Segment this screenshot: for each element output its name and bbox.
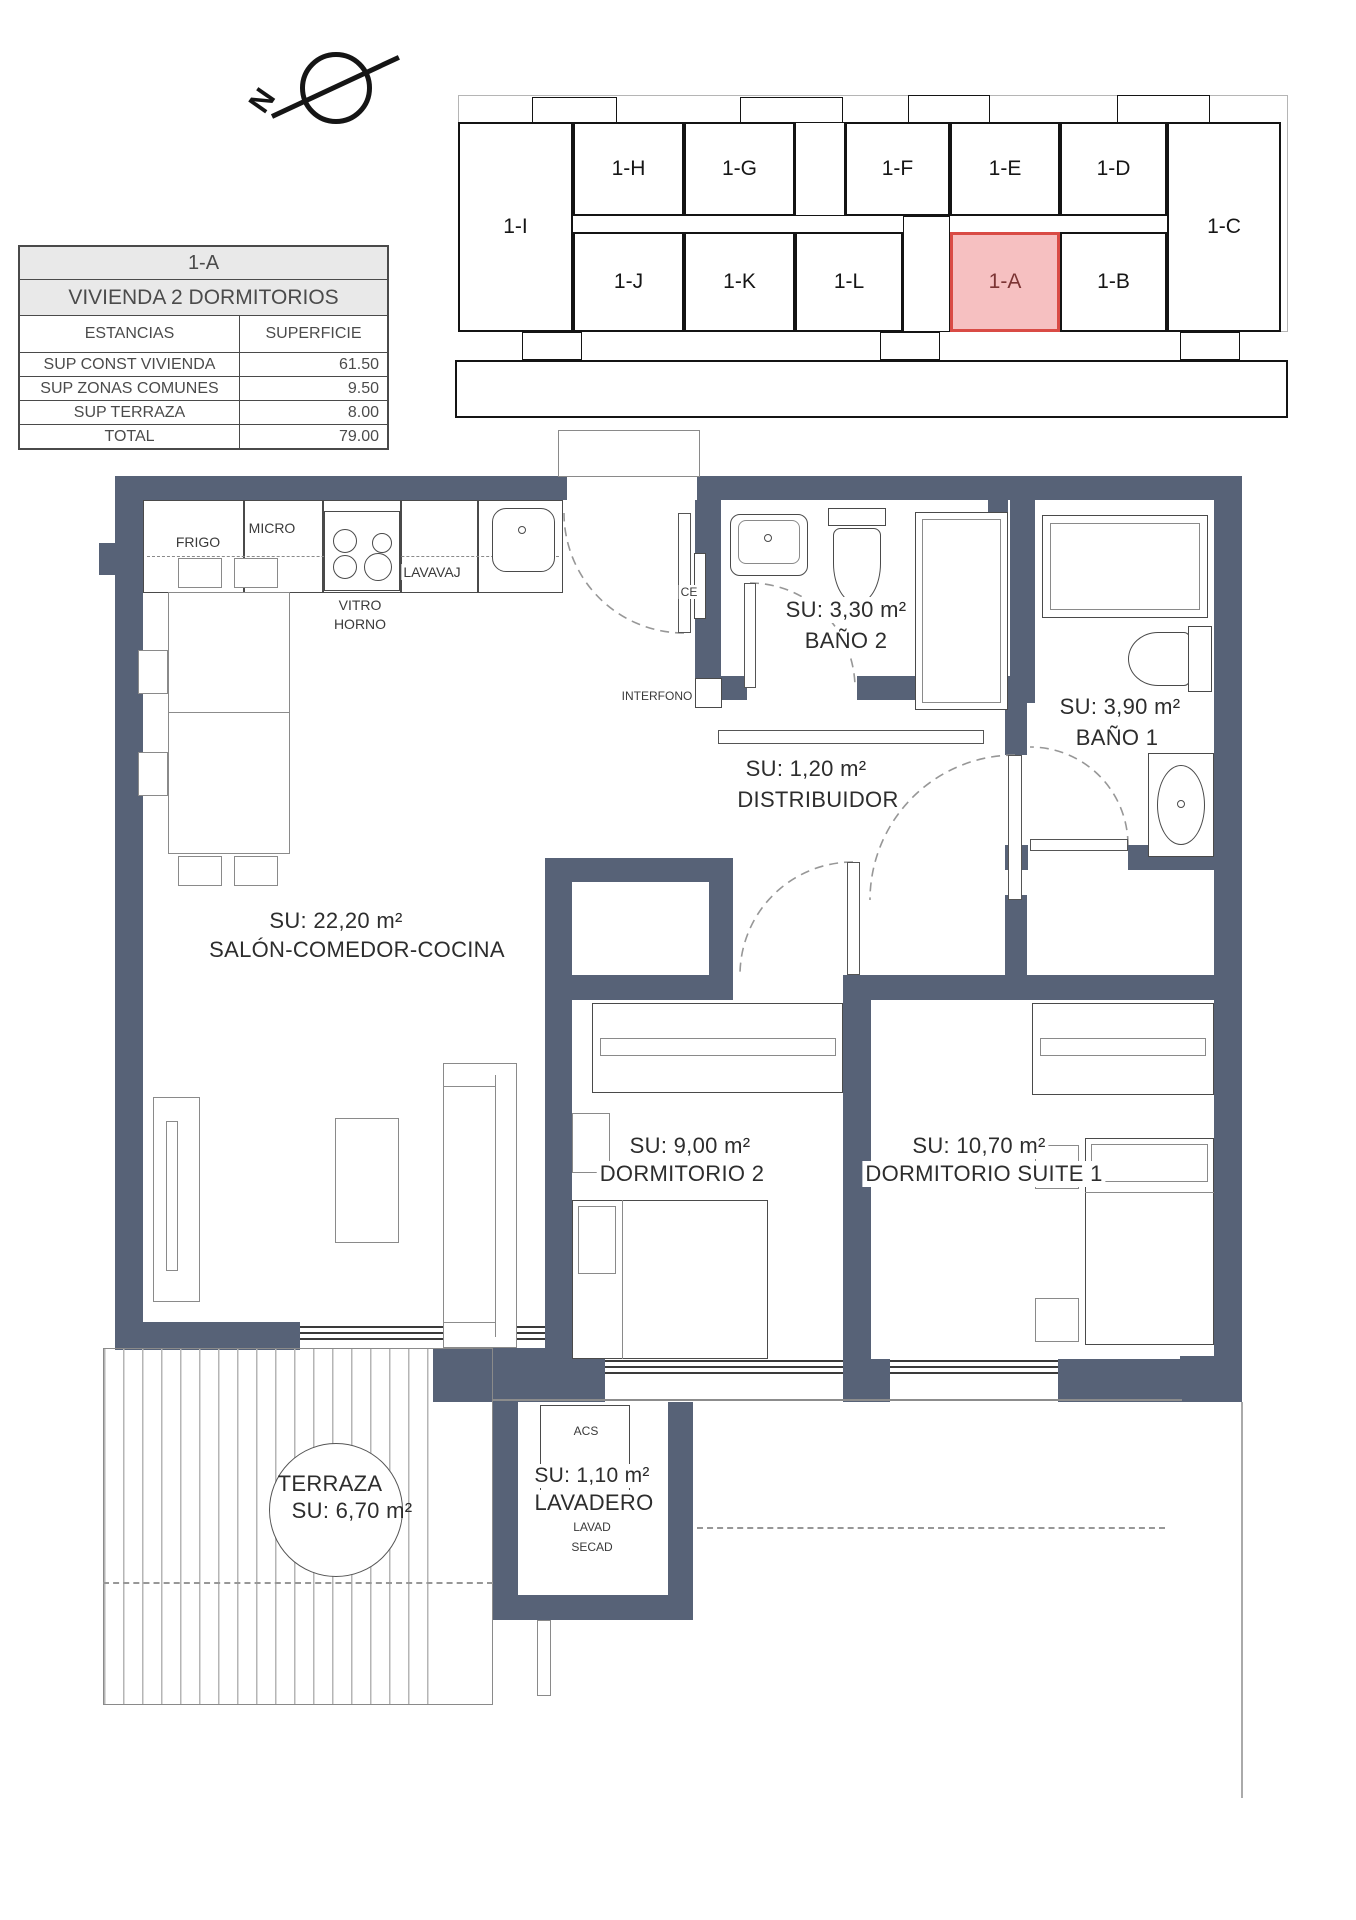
unit-id: 1-A [20,247,387,279]
bath1-door-leaf [1030,839,1128,851]
col-estancias: ESTANCIAS [20,316,239,352]
pillow [578,1206,616,1274]
table-row: SUP ZONAS COMUNES 9.50 [20,376,387,400]
row-value: 9.50 [239,377,387,400]
nightstand [1035,1298,1079,1342]
laundry-label: LAVADERO [532,1490,657,1516]
row-label: SUP TERRAZA [20,401,239,424]
unit-type: VIVIENDA 2 DORMITORIOS [20,279,387,315]
hob-label: VITRO [337,597,384,613]
bath1-area-value: SU: 3,90 m² [1057,694,1184,720]
fridge-label: FRIGO [174,534,222,550]
hob [324,511,400,591]
dining-table [168,592,290,854]
floor-plan-sheet: 1-A VIVIENDA 2 DORMITORIOS ESTANCIAS SUP… [0,0,1356,1920]
bedroom2-label: DORMITORIO 2 [597,1161,768,1187]
water-heater-label: ACS [572,1424,601,1438]
terrace-label: TERRAZA [275,1471,386,1497]
living-room-label: SALÓN-COMEDOR-COCINA [206,937,508,963]
bath2-door-leaf [744,583,756,688]
intercom-label: INTERFONO [620,689,695,703]
bath1-label: BAÑO 1 [1073,725,1162,751]
row-value: 61.50 [239,353,387,376]
toilet-tank [1188,626,1212,692]
kitchen-sink [492,508,555,572]
drain-pipe [537,1620,551,1696]
hall-area-value: SU: 1,20 m² [743,756,870,782]
table-column-headers: ESTANCIAS SUPERFICIE [20,315,387,352]
living-area-value: SU: 22,20 m² [266,908,405,934]
suite-area-value: SU: 10,70 m² [909,1133,1048,1159]
unit-info-table: 1-A VIVIENDA 2 DORMITORIOS ESTANCIAS SUP… [18,245,389,450]
table-row: SUP CONST VIVIENDA 61.50 [20,352,387,376]
suite-label: DORMITORIO SUITE 1 [862,1161,1105,1187]
microwave-label: MICRO [247,520,298,536]
hall-label: DISTRIBUIDOR [734,787,901,813]
terrace-area-value: SU: 6,70 m² [289,1498,416,1524]
laundry-area-value: SU: 1,10 m² [531,1464,652,1488]
intercom-box [695,678,722,708]
hall-opening-leaf [718,730,984,744]
bedroom2-area-value: SU: 9,00 m² [627,1133,754,1159]
pillow [1091,1144,1208,1182]
washer-label: LAVAD [571,1520,613,1534]
col-superficie: SUPERFICIE [239,316,387,352]
table-row: SUP TERRAZA 8.00 [20,400,387,424]
suite-door-leaf [1008,755,1022,900]
entry-door-leaf [678,513,691,633]
toilet-tank [828,508,886,526]
row-value: 79.00 [239,425,387,448]
bath2-label: BAÑO 2 [802,628,891,654]
bedroom2-door-leaf [847,862,860,975]
row-value: 8.00 [239,401,387,424]
row-label: SUP CONST VIVIENDA [20,353,239,376]
key-unit-1A-highlighted: 1-A [950,232,1060,332]
oven-label: HORNO [332,616,388,632]
dryer-label: SECAD [569,1540,614,1554]
sofa [443,1063,517,1348]
table-row: TOTAL 79.00 [20,424,387,448]
toilet [1128,632,1190,686]
row-label: SUP ZONAS COMUNES [20,377,239,400]
coffee-table [335,1118,399,1243]
dishwasher-label: LAVAVAJ [401,564,462,580]
bath2-area-value: SU: 3,30 m² [783,597,910,623]
electrical-label: CE [679,585,700,599]
row-label: TOTAL [20,425,239,448]
